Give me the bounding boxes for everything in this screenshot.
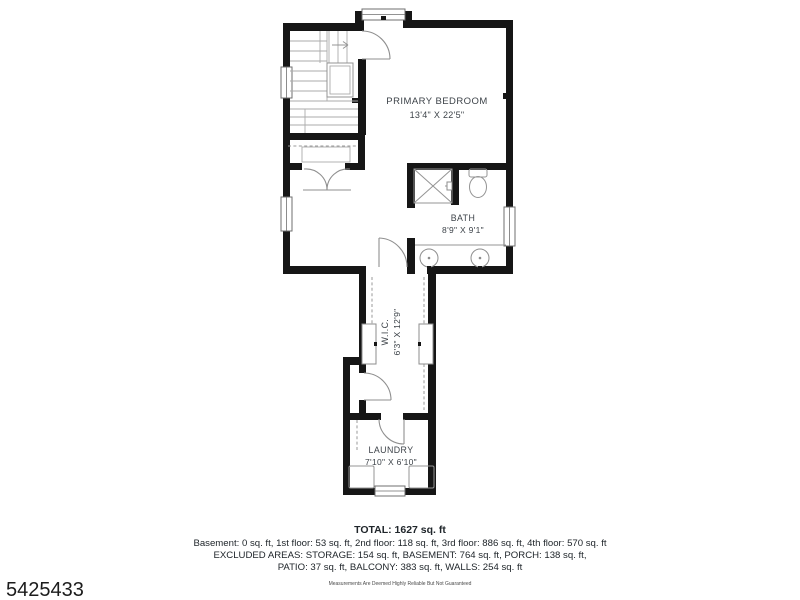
shower-icon xyxy=(414,169,452,203)
excluded-areas-text-2: PATIO: 37 sq. ft, BALCONY: 383 sq. ft, W… xyxy=(278,562,523,573)
door-laundry xyxy=(379,419,404,444)
window-left-upper xyxy=(281,67,292,98)
washer-icon xyxy=(349,466,374,488)
room-dims-wic: 6'3" X 12'9" xyxy=(392,309,402,356)
floor-areas-text: Basement: 0 sq. ft, 1st floor: 53 sq. ft… xyxy=(193,538,606,549)
room-label-laundry: LAUNDRY xyxy=(368,445,413,455)
door-closet-french xyxy=(303,169,351,190)
room-label-primary-bedroom: PRIMARY BEDROOM xyxy=(386,96,487,107)
room-label-wic: W.I.C. xyxy=(380,319,390,346)
room-dims-primary-bedroom: 13'4" X 22'5" xyxy=(410,110,465,120)
wic-builtin-right xyxy=(418,324,433,364)
door-bath xyxy=(379,238,407,267)
toilet-icon xyxy=(469,169,487,198)
area-summary: TOTAL: 1627 sq. ft Basement: 0 sq. ft, 1… xyxy=(193,524,606,587)
room-dims-bath: 8'9" X 9'1" xyxy=(442,225,484,235)
window-left-lower xyxy=(281,197,292,231)
bedroom-closet xyxy=(288,146,356,162)
door-bedroom-entry xyxy=(362,31,390,59)
room-label-bath: BATH xyxy=(451,213,476,223)
window-right-bath xyxy=(504,207,515,246)
window-top-bay xyxy=(362,9,405,20)
floor-plan-svg: PRIMARY BEDROOM 13'4" X 22'5" BATH 8'9" … xyxy=(0,0,800,600)
total-area-text: TOTAL: 1627 sq. ft xyxy=(354,524,446,536)
staircase xyxy=(290,31,358,133)
window-laundry-bottom xyxy=(375,486,405,496)
listing-id: 5425433 xyxy=(6,579,84,600)
room-labels: PRIMARY BEDROOM 13'4" X 22'5" BATH 8'9" … xyxy=(365,96,488,467)
wic-builtin-left xyxy=(362,324,377,364)
floor-plan-page: PRIMARY BEDROOM 13'4" X 22'5" BATH 8'9" … xyxy=(0,0,800,600)
stair-direction-arrow-icon xyxy=(332,42,348,49)
excluded-areas-text-1: EXCLUDED AREAS: STORAGE: 154 sq. ft, BAS… xyxy=(213,550,586,561)
disclaimer-text: Measurements Are Deemed Highly Reliable … xyxy=(329,581,472,587)
door-wic xyxy=(364,373,391,400)
room-dims-laundry: 7'10" X 6'10" xyxy=(365,457,417,467)
